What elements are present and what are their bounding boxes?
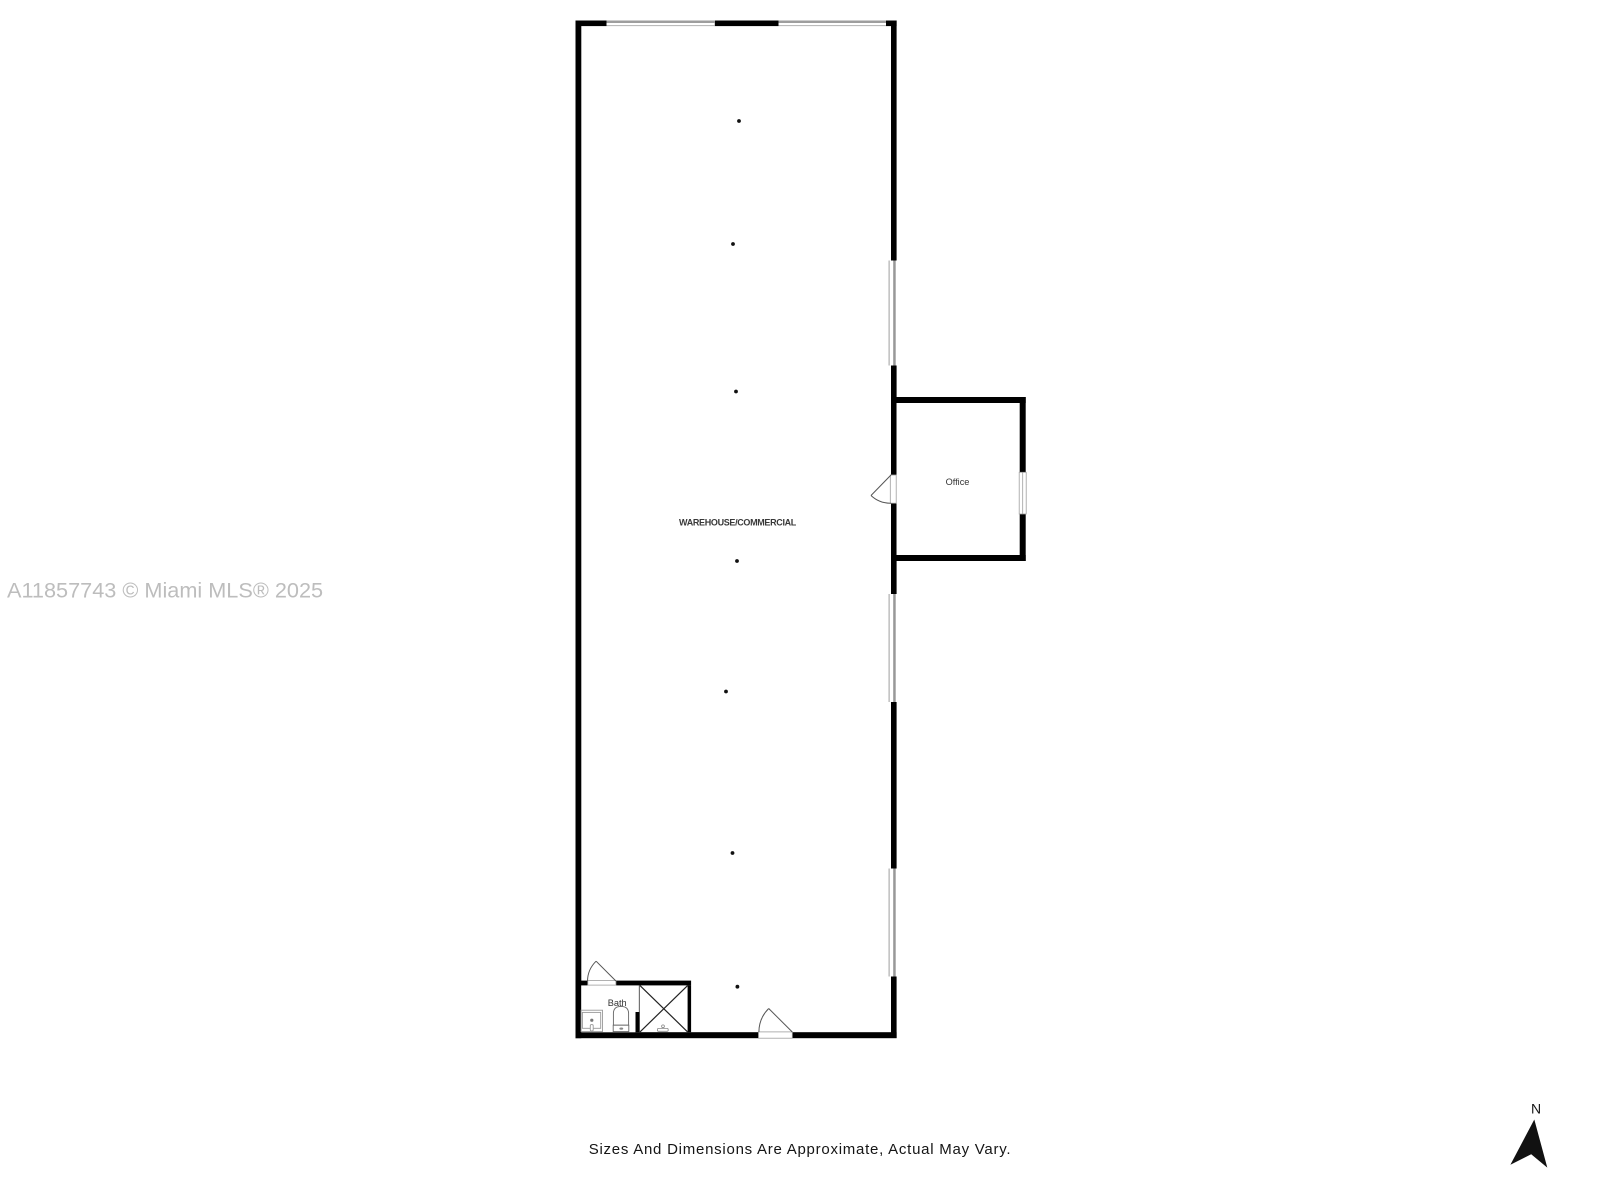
svg-text:A11857743 © Miami MLS® 2025: A11857743 © Miami MLS® 2025	[7, 577, 323, 602]
svg-text:WAREHOUSE/COMMERCIAL: WAREHOUSE/COMMERCIAL	[679, 518, 797, 528]
svg-text:Office: Office	[946, 477, 970, 487]
svg-text:N: N	[1531, 1100, 1541, 1116]
svg-text:Sizes And Dimensions Are Appro: Sizes And Dimensions Are Approximate, Ac…	[589, 1141, 1012, 1158]
